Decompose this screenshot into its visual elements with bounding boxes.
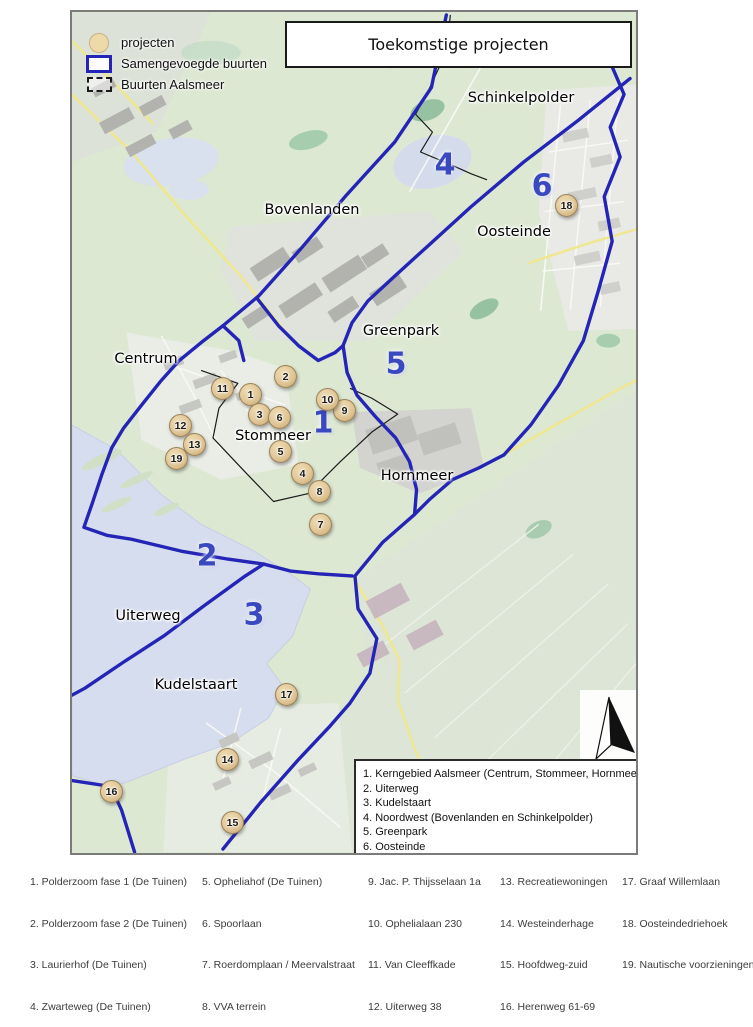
north-arrow-icon (580, 690, 638, 759)
blue-rect-icon-shape (86, 55, 112, 73)
map-legend: projectenSamengevoegde buurtenBuurten Aa… (86, 32, 267, 95)
project-list-item-6: 6. Spoorlaan (202, 919, 355, 930)
project-marker-17: 17 (275, 683, 298, 706)
blue-rect-icon (86, 55, 112, 73)
area-label-greenpark: Greenpark (363, 323, 439, 339)
zones-legend-line-6: 6. Oosteinde (363, 840, 634, 855)
project-list-item-3: 3. Laurierhof (De Tuinen) (30, 960, 187, 971)
project-marker-11: 11 (211, 377, 234, 400)
project-marker-19: 19 (165, 447, 188, 470)
zone-number-3: 3 (244, 598, 265, 633)
project-list-item-11: 11. Van Cleeffkade (368, 960, 481, 971)
area-label-uiterweg: Uiterweg (115, 608, 180, 624)
map-title: Toekomstige projecten (285, 21, 632, 68)
zones-legend-line-4: 4. Noordwest (Bovenlanden en Schinkelpol… (363, 811, 634, 826)
project-list-item-13: 13. Recreatiewoningen (500, 877, 607, 888)
dashed-rect-icon (86, 77, 112, 92)
legend-item-label: Samengevoegde buurten (121, 56, 267, 71)
area-label-centrum: Centrum (114, 351, 177, 367)
zones-legend-line-3: 3. Kudelstaart (363, 796, 634, 811)
page: Toekomstige projecten projectenSamengevo… (0, 0, 753, 1027)
legend-item-1: Samengevoegde buurten (86, 53, 267, 74)
project-list-item-12: 12. Uiterweg 38 (368, 1002, 481, 1013)
project-list-column-3: 9. Jac. P. Thijsselaan 1a10. Ophelialaan… (368, 877, 481, 1027)
project-list-item-8: 8. VVA terrein (202, 1002, 355, 1013)
project-list-item-15: 15. Hoofdweg-zuid (500, 960, 607, 971)
project-list-item-16: 16. Herenweg 61-69 (500, 1002, 607, 1013)
project-circle-icon (86, 33, 112, 53)
legend-item-label: Buurten Aalsmeer (121, 77, 224, 92)
north-arrow-box (580, 690, 638, 759)
zones-legend-box: 1. Kerngebied Aalsmeer (Centrum, Stommee… (354, 759, 638, 855)
basemap-art (72, 12, 636, 853)
legend-item-label: projecten (121, 35, 174, 50)
project-list-column-4: 13. Recreatiewoningen14. Westeinderhage1… (500, 877, 607, 1027)
project-list-item-7: 7. Roerdomplaan / Meervalstraat (202, 960, 355, 971)
project-marker-7: 7 (309, 513, 332, 536)
area-label-bovenlanden: Bovenlanden (265, 202, 360, 218)
project-list-item-14: 14. Westeinderhage (500, 919, 607, 930)
zones-legend-line-2: 2. Uiterweg (363, 782, 634, 797)
legend-item-0: projecten (86, 32, 267, 53)
project-list: 1. Polderzoom fase 1 (De Tuinen)2. Polde… (0, 877, 753, 1027)
project-list-item-19: 19. Nautische voorzieningen (622, 960, 753, 971)
project-list-item-2: 2. Polderzoom fase 2 (De Tuinen) (30, 919, 187, 930)
project-marker-16: 16 (100, 780, 123, 803)
area-label-oosteinde: Oosteinde (477, 224, 551, 240)
project-list-item-10: 10. Ophelialaan 230 (368, 919, 481, 930)
project-marker-18: 18 (555, 194, 578, 217)
project-marker-8: 8 (308, 480, 331, 503)
project-marker-6: 6 (268, 406, 291, 429)
project-marker-5: 5 (269, 440, 292, 463)
project-marker-2: 2 (274, 365, 297, 388)
zones-legend-line-1: 1. Kerngebied Aalsmeer (Centrum, Stommee… (363, 767, 634, 782)
map-title-text: Toekomstige projecten (368, 35, 548, 54)
area-label-hornmeer: Hornmeer (381, 468, 454, 484)
dashed-rect-icon-shape (87, 77, 112, 92)
zone-number-5: 5 (386, 347, 407, 382)
project-list-item-4: 4. Zwarteweg (De Tuinen) (30, 1002, 187, 1013)
project-list-column-2: 5. Opheliahof (De Tuinen)6. Spoorlaan7. … (202, 877, 355, 1027)
zone-number-2: 2 (197, 539, 218, 574)
project-list-item-17: 17. Graaf Willemlaan (622, 877, 753, 888)
map-canvas: Toekomstige projecten projectenSamengevo… (70, 10, 638, 855)
project-list-column-5: 17. Graaf Willemlaan18. Oosteindedriehoe… (622, 877, 753, 1002)
zone-number-4: 4 (435, 148, 456, 183)
project-list-item-18: 18. Oosteindedriehoek (622, 919, 753, 930)
project-list-item-9: 9. Jac. P. Thijsselaan 1a (368, 877, 481, 888)
zone-number-6: 6 (532, 169, 553, 204)
project-marker-14: 14 (216, 748, 239, 771)
project-list-item-5: 5. Opheliahof (De Tuinen) (202, 877, 355, 888)
project-list-column-1: 1. Polderzoom fase 1 (De Tuinen)2. Polde… (30, 877, 187, 1027)
project-marker-15: 15 (221, 811, 244, 834)
legend-item-2: Buurten Aalsmeer (86, 74, 267, 95)
area-label-schinkelpolder: Schinkelpolder (468, 90, 575, 106)
project-circle-icon-shape (89, 33, 109, 53)
project-marker-10: 10 (316, 388, 339, 411)
area-label-kudelstaart: Kudelstaart (155, 677, 238, 693)
project-marker-4: 4 (291, 462, 314, 485)
project-list-item-1: 1. Polderzoom fase 1 (De Tuinen) (30, 877, 187, 888)
zone-number-1: 1 (313, 406, 334, 441)
zones-legend-line-5: 5. Greenpark (363, 825, 634, 840)
